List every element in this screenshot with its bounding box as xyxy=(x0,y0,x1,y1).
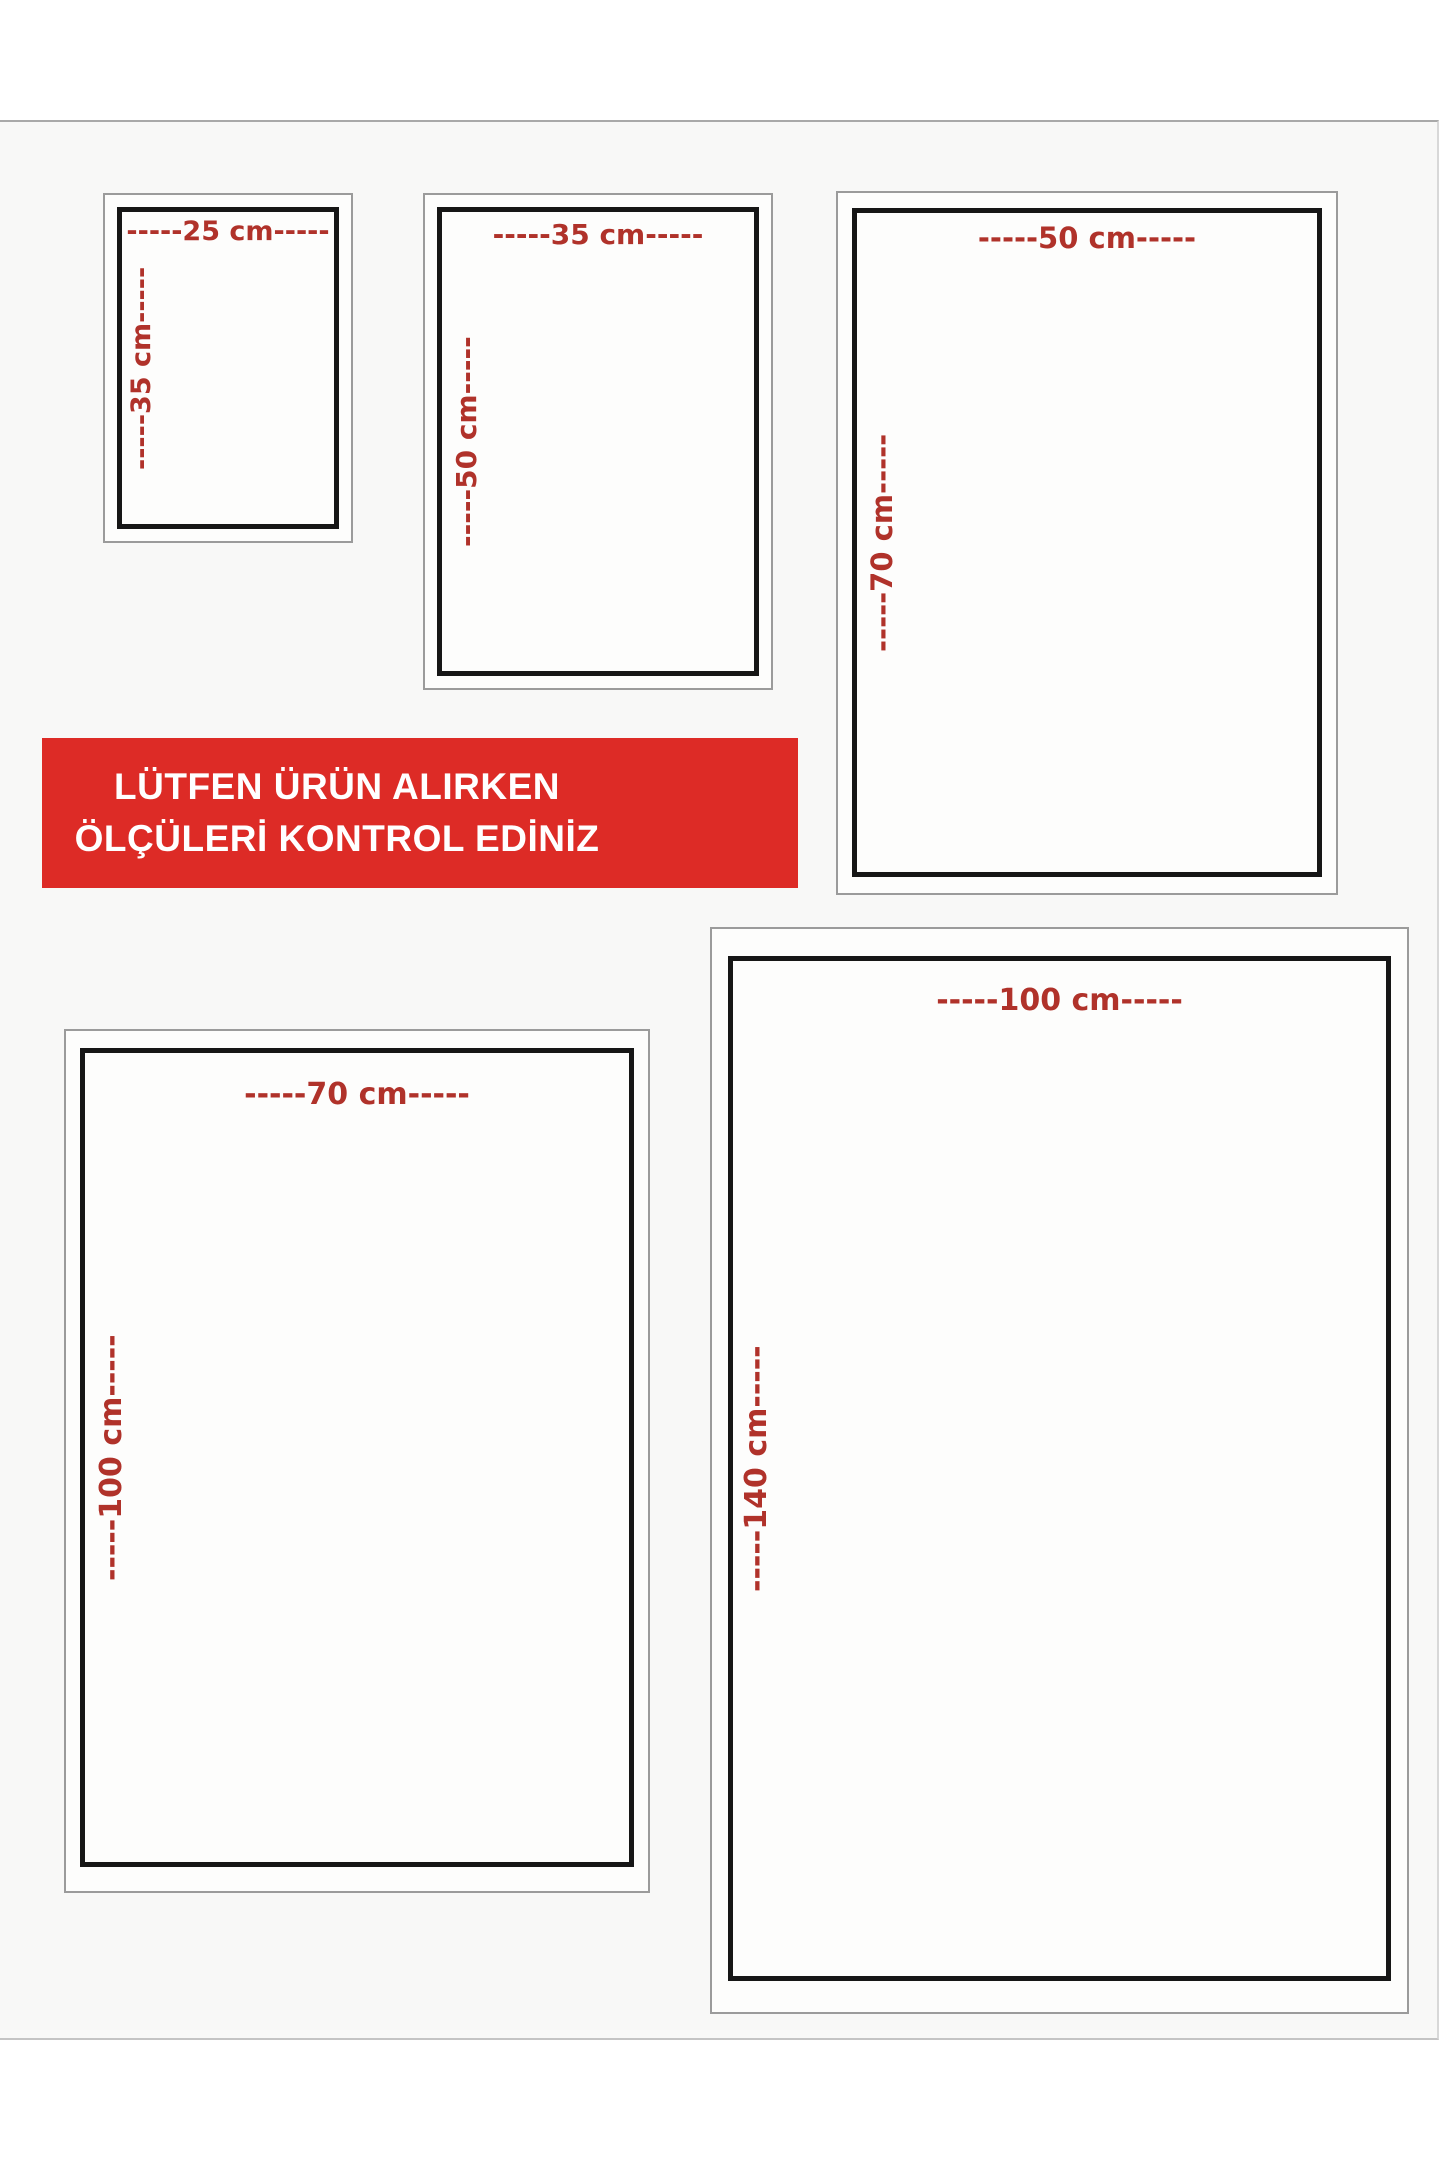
size-card-70x100: -----70 cm----- -----100 cm----- xyxy=(64,1029,650,1893)
warning-banner: LÜTFEN ÜRÜN ALIRKEN ÖLÇÜLERİ KONTROL EDİ… xyxy=(42,738,798,888)
width-label-50cm: -----50 cm----- xyxy=(857,221,1317,255)
size-frame-35x50: -----35 cm----- -----50 cm----- xyxy=(437,207,759,676)
height-label-70cm: -----70 cm----- xyxy=(865,213,899,872)
size-card-35x50: -----35 cm----- -----50 cm----- xyxy=(423,193,773,690)
size-frame-25x35: -----25 cm----- -----35 cm----- xyxy=(117,207,339,529)
height-label-35cm: -----35 cm----- xyxy=(126,212,157,524)
width-label-35cm: -----35 cm----- xyxy=(442,218,754,251)
size-card-50x70: -----50 cm----- -----70 cm----- xyxy=(836,191,1338,895)
height-label-140cm: -----140 cm----- xyxy=(739,961,774,1976)
size-frame-70x100: -----70 cm----- -----100 cm----- xyxy=(80,1048,634,1867)
height-label-100cm: -----100 cm----- xyxy=(94,1053,129,1862)
warning-line-1: LÜTFEN ÜRÜN ALIRKEN xyxy=(114,761,560,813)
width-label-70cm: -----70 cm----- xyxy=(85,1077,629,1112)
size-card-25x35: -----25 cm----- -----35 cm----- xyxy=(103,193,353,543)
warning-line-2: ÖLÇÜLERİ KONTROL EDİNİZ xyxy=(75,813,600,865)
width-label-100cm: -----100 cm----- xyxy=(733,983,1386,1018)
warning-banner-text: LÜTFEN ÜRÜN ALIRKEN ÖLÇÜLERİ KONTROL EDİ… xyxy=(72,738,602,888)
size-frame-50x70: -----50 cm----- -----70 cm----- xyxy=(852,208,1322,877)
size-frame-100x140: -----100 cm----- -----140 cm----- xyxy=(728,956,1391,1981)
size-card-100x140: -----100 cm----- -----140 cm----- xyxy=(710,927,1409,2014)
height-label-50cm: -----50 cm----- xyxy=(450,212,483,671)
